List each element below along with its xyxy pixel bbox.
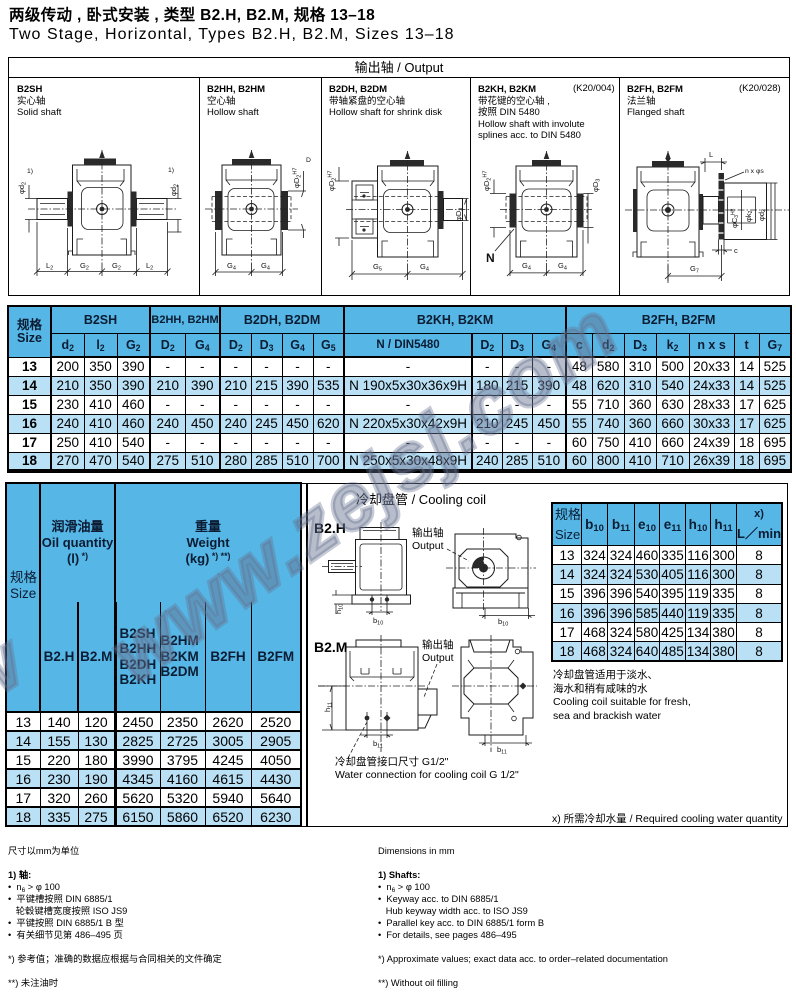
- svg-text:L2: L2: [146, 261, 153, 272]
- svg-text:L2: L2: [46, 261, 53, 272]
- svg-text:φd2: φd2: [757, 209, 767, 221]
- svg-text:φk2: φk2: [744, 210, 754, 222]
- svg-text:G4: G4: [420, 262, 429, 273]
- svg-text:1): 1): [168, 167, 174, 174]
- svg-text:c: c: [734, 246, 738, 255]
- svg-text:L: L: [709, 150, 713, 159]
- svg-text:G2: G2: [80, 261, 89, 272]
- svg-text:φC3H8: φC3H8: [730, 208, 740, 228]
- svg-text:G4: G4: [558, 261, 567, 272]
- svg-text:D: D: [306, 157, 311, 164]
- svg-text:G2: G2: [112, 261, 121, 272]
- svg-text:1): 1): [27, 168, 33, 175]
- svg-text:φD2H7: φD2H7: [327, 171, 338, 191]
- svg-text:G5: G5: [373, 262, 382, 273]
- svg-text:φD2H7: φD2H7: [292, 168, 303, 188]
- svg-text:n x φs: n x φs: [745, 168, 764, 175]
- svg-text:φD2H7: φD2H7: [482, 171, 493, 191]
- svg-text:φd2: φd2: [17, 182, 28, 194]
- svg-text:N: N: [486, 251, 495, 265]
- svg-text:G4: G4: [261, 261, 270, 272]
- svg-text:G7: G7: [690, 264, 699, 275]
- svg-text:φd2: φd2: [169, 184, 180, 196]
- svg-text:φD3: φD3: [591, 179, 602, 192]
- svg-text:G4: G4: [522, 261, 531, 272]
- svg-text:G4: G4: [227, 261, 236, 272]
